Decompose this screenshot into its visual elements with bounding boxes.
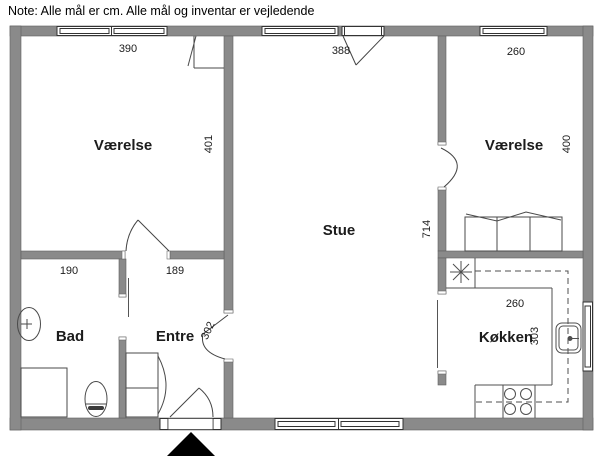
- wall-stue-vaerelse-right-lower: [438, 188, 446, 251]
- lamp-icon: [450, 261, 472, 283]
- dim-vaerelse-right-depth: 400: [561, 135, 573, 153]
- wall-outer-left: [10, 26, 21, 430]
- dim-vaerelse-right-width: 260: [507, 46, 525, 58]
- window-vaerelse-right: [480, 27, 547, 36]
- toilet-icon: [85, 382, 107, 417]
- entrance-arrow-icon: [167, 432, 215, 456]
- wall-vaerelse-koekken: [438, 251, 583, 258]
- dim-stue-depth: 714: [421, 220, 433, 238]
- closet-icon: [188, 36, 224, 68]
- wall-vaerelse-stue-lower: [224, 360, 233, 418]
- bed-icon: [465, 212, 562, 251]
- door-vaerelse-right: [441, 148, 457, 187]
- wall-stue-vaerelse-right-upper: [438, 36, 446, 145]
- window-vaerelse-left: [57, 27, 167, 36]
- window-koekken-right: [583, 302, 593, 371]
- dim-koekken-width: 260: [506, 298, 524, 310]
- bathroom-fixtures: [18, 308, 108, 418]
- room-label-entre: Entre: [156, 328, 194, 345]
- dim-bad-width: 190: [60, 265, 78, 277]
- dim-entre-door: 302: [199, 320, 218, 342]
- wall-bad-entre-lower: [119, 337, 126, 418]
- wall-koekken-left-upper: [438, 258, 446, 294]
- window-stue-bottom: [275, 419, 403, 430]
- dim-vaerelse-left-width: 390: [119, 43, 137, 55]
- room-label-vaerelse-right: Værelse: [485, 137, 543, 154]
- dim-entre-width: 189: [166, 265, 184, 277]
- dim-stue-width: 388: [332, 45, 350, 57]
- door-vaerelse-left: [126, 220, 169, 251]
- shower-icon: [21, 368, 67, 417]
- dim-vaerelse-left-depth: 401: [203, 135, 215, 153]
- dim-koekken-depth: 303: [529, 327, 541, 345]
- floor-plan-page: Note: Alle mål er cm. Alle mål og invent…: [0, 0, 600, 457]
- room-label-koekken: Køkken: [479, 329, 533, 346]
- entre-wardrobe-icon: [126, 353, 166, 417]
- doors: [126, 27, 457, 430]
- window-stue-top: [262, 27, 338, 36]
- room-label-stue: Stue: [323, 222, 356, 239]
- room-label-vaerelse-left: Værelse: [94, 137, 152, 154]
- interior-walls: [21, 36, 583, 418]
- floor-plan-drawing: Værelse 390 401 Stue 388 714 Værelse 260…: [0, 0, 600, 457]
- door-entrance: [160, 388, 221, 430]
- room-label-bad: Bad: [56, 328, 84, 345]
- wall-bad-vaerelse: [21, 251, 125, 259]
- outer-walls: [10, 26, 593, 430]
- wall-entre-vaerelse: [170, 251, 224, 259]
- wall-vaerelse-stue-upper: [224, 36, 233, 313]
- wall-bad-entre-upper: [119, 259, 126, 297]
